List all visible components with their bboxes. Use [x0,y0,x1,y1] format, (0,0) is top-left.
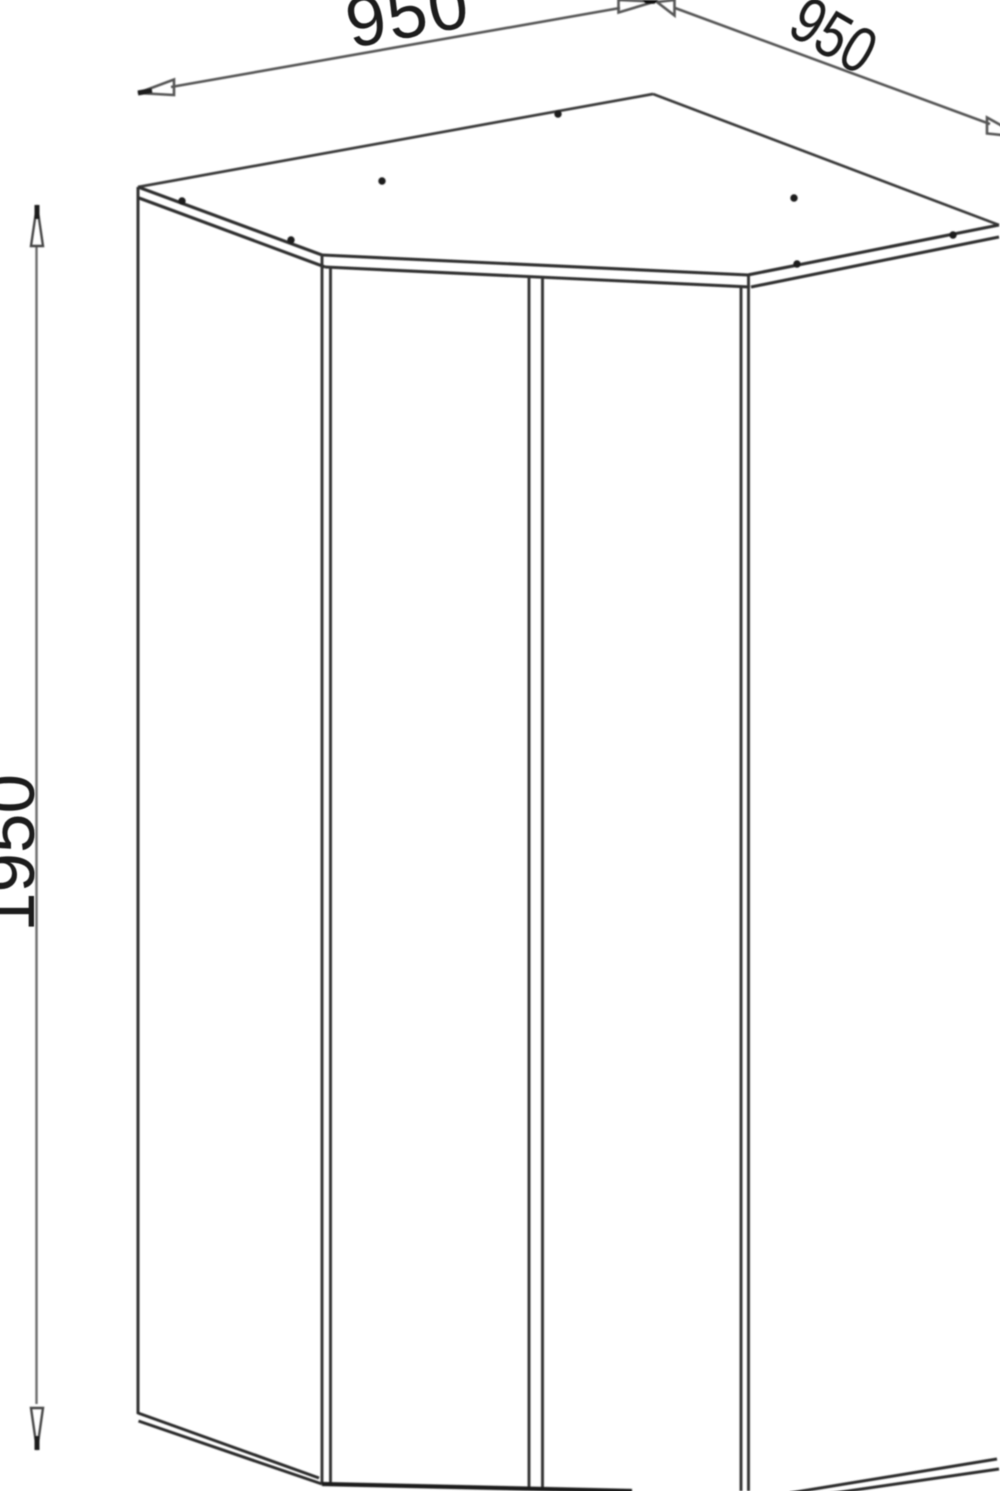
svg-text:1950: 1950 [0,774,50,932]
svg-text:950: 950 [340,0,477,64]
svg-text:950: 950 [778,0,889,88]
